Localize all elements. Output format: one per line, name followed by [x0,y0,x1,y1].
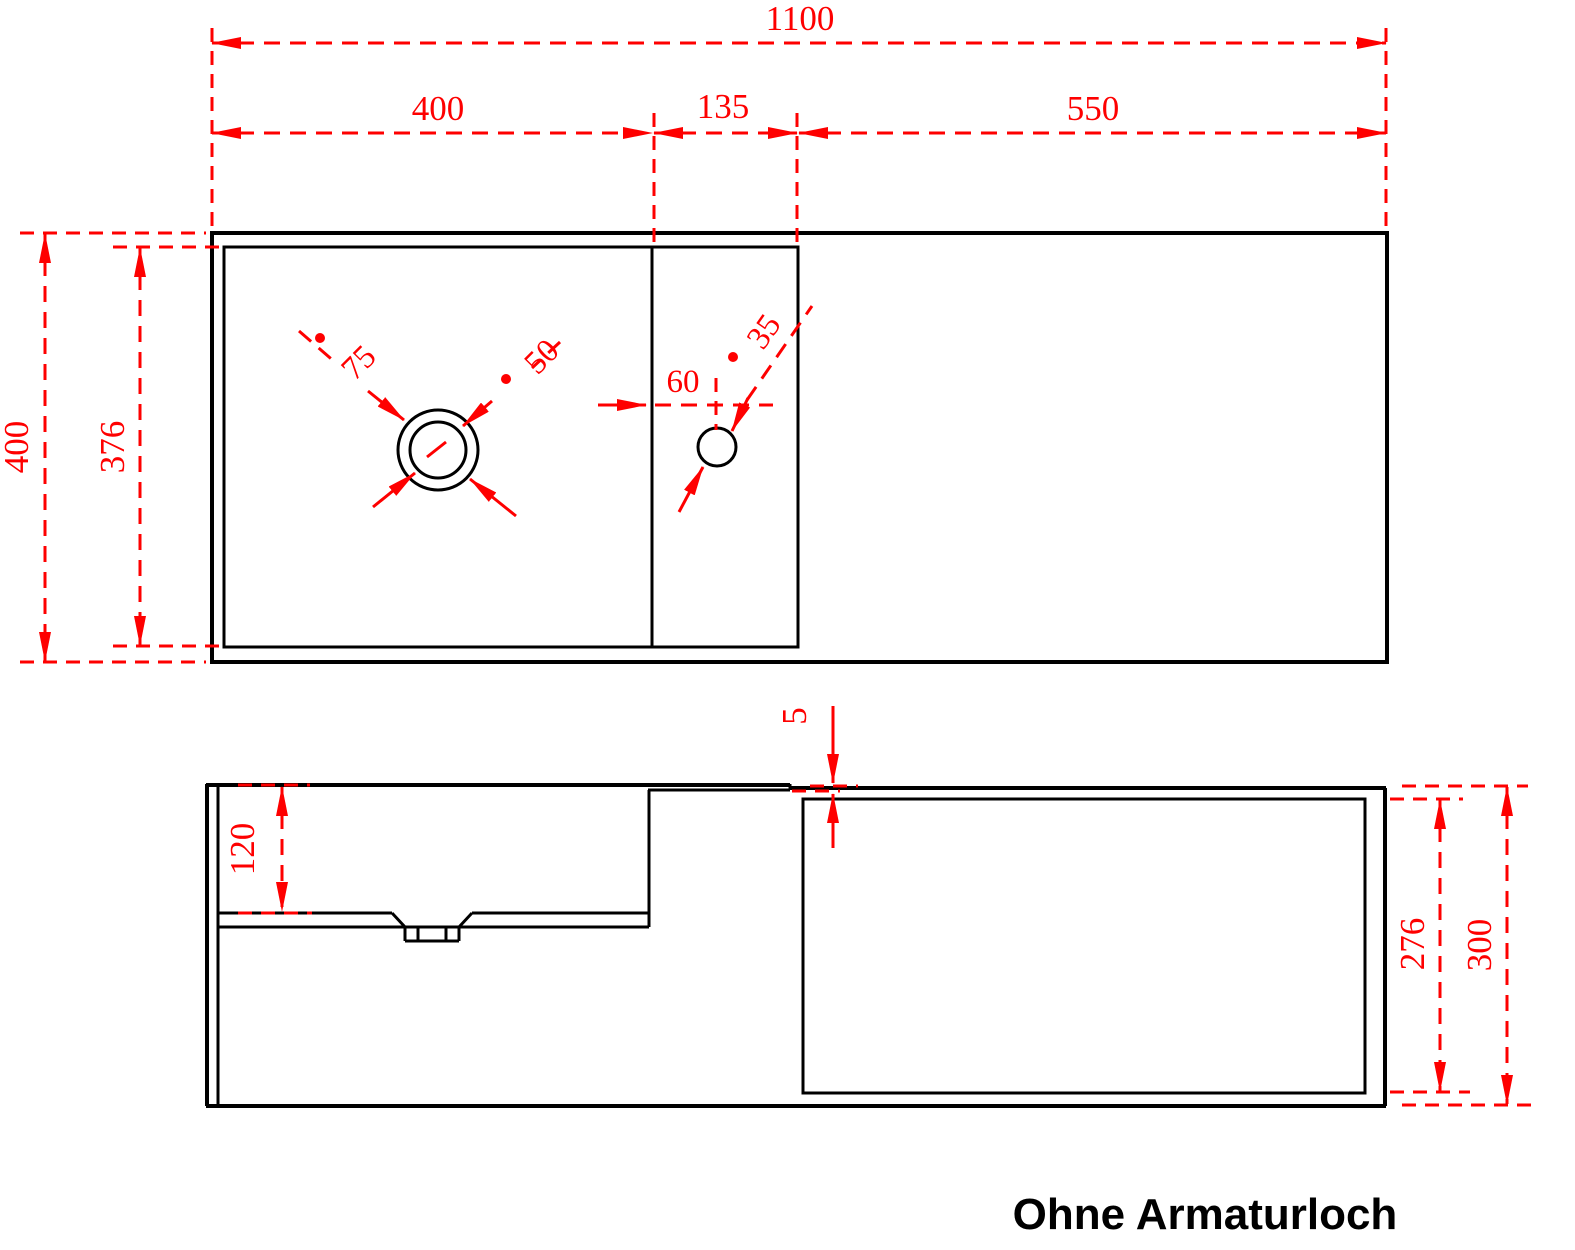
leader-arrow [368,391,404,420]
dim-basin-width: 400 [212,89,652,133]
dim-total-depth: 400 [0,234,45,661]
basin-rim-outline [224,247,798,647]
drawing-sheet: 1100 400 135 550 400 376 7 [0,0,1575,1250]
leader-arrow [732,398,748,431]
dim-label-counter-width: 550 [1067,89,1120,128]
drawing-caption: Ohne Armaturloch [1013,1190,1398,1239]
deck-hole-circle [698,428,736,466]
leader-dot [501,374,511,384]
dim-total-width: 1100 [212,0,1386,43]
dimensions: 1100 400 135 550 400 376 7 [0,0,1507,1104]
leader-dot [315,333,325,343]
dim-label-inner-depth: 376 [93,421,132,474]
dim-deck-width: 135 [654,87,797,133]
dim-label-basin-width: 400 [412,89,465,128]
dim-total-height: 300 [1460,787,1507,1104]
dim-label-drain-outer: 75 [335,339,384,388]
dim-counter-width: 550 [799,89,1386,133]
dim-recess-height: 276 [1393,800,1440,1091]
leader-dot [728,352,738,362]
dim-label-total-width: 1100 [766,0,835,38]
dim-label-recess-height: 276 [1393,918,1432,971]
dim-label-deck-width: 135 [697,87,750,126]
dim-label-hole-offset: 60 [667,364,700,400]
technical-drawing: 1100 400 135 550 400 376 7 [0,0,1575,1250]
dim-label-basin-depth: 120 [223,823,262,876]
leader-arrow [463,401,492,426]
under-counter-recess [803,799,1365,1093]
leader-arrow [679,467,703,512]
dim-hole-offset: 60 [598,364,773,430]
side-view [206,784,1386,1106]
dim-label-drain-inner: 50 [518,333,567,382]
dim-label-total-depth: 400 [0,421,36,474]
leader-arrow [470,479,516,516]
dim-hole-diameter: 35 [679,306,812,512]
top-view [212,233,1387,662]
dim-label-total-height: 300 [1460,919,1499,972]
dim-label-step-height: 5 [775,707,814,725]
drain-trap-slant-right [459,913,472,927]
dim-inner-depth: 376 [93,248,140,645]
dim-basin-depth: 120 [223,787,282,911]
center-mark [427,442,446,457]
drain-trap-slant-left [392,913,405,927]
leader-arrow [373,473,415,507]
extension-lines [20,28,1532,1105]
